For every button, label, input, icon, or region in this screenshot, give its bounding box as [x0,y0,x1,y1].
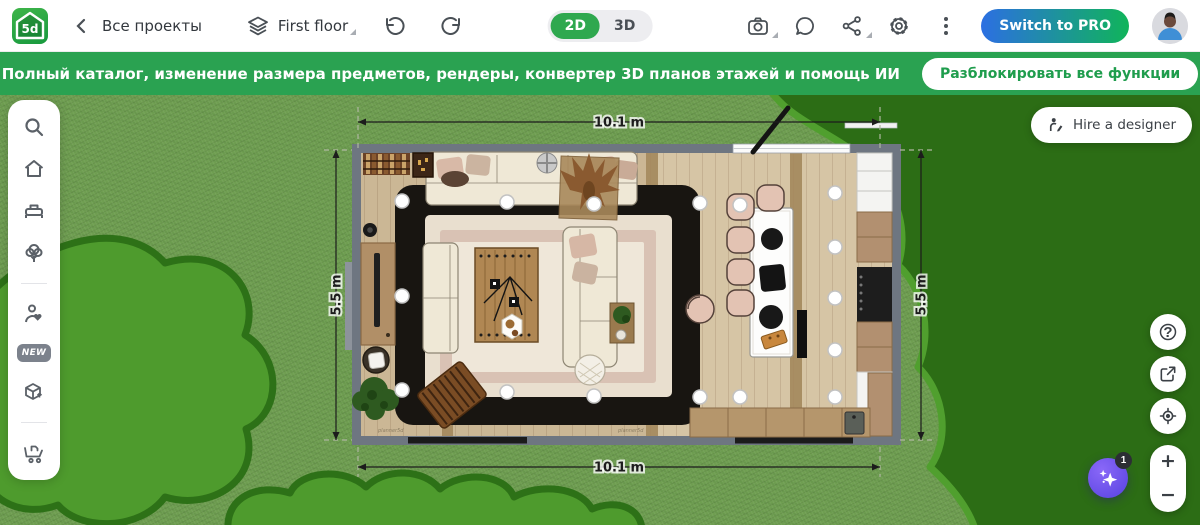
ai-notification-badge: 1 [1115,452,1132,469]
screenshot-camera-icon[interactable] [746,14,770,38]
window-bottom-right[interactable] [735,437,853,444]
zoom-controls: + − [1150,445,1186,512]
floor-plan-scene[interactable]: planner5d planner5d [0,95,1200,525]
toggle-2d[interactable]: 2D [551,13,600,39]
rooms-home-icon[interactable] [22,157,46,181]
sofa-right[interactable] [563,227,617,385]
back-chevron-icon[interactable] [70,14,94,38]
user-avatar[interactable] [1152,8,1188,44]
planner5d-app: 5d Все проекты First floor 2D 3D [0,0,1200,525]
watermark: planner5d [377,428,404,434]
switch-to-pro-button[interactable]: Switch to PRO [981,9,1129,43]
picture-frame[interactable] [413,153,433,177]
tv-console[interactable] [361,243,395,345]
watermark: planner5d [617,428,644,434]
dimension-height-right: 5.5 m [915,274,930,315]
share-icon[interactable] [840,14,864,38]
toggle-3d[interactable]: 3D [600,13,649,39]
coffee-table[interactable] [475,248,538,342]
export-button[interactable] [1150,356,1186,392]
hire-designer-button[interactable]: Hire a designer [1031,107,1192,143]
planner5d-logo[interactable]: 5d [12,8,48,44]
window-bottom-left[interactable] [408,437,527,444]
designer-pencil-icon [1047,116,1065,134]
help-question-mark: ? [1163,324,1172,341]
settings-gear-icon[interactable] [887,14,911,38]
wall-tv[interactable] [797,310,807,358]
bottom-cabinets[interactable] [690,408,870,437]
ledge-left [345,262,352,350]
sidebar-divider [21,283,47,284]
plant-side-table[interactable] [610,303,634,343]
chat-icon[interactable] [793,14,817,38]
garden-tree-icon[interactable] [22,241,46,265]
floor-selector[interactable]: First floor [278,17,348,35]
dimension-width-top: 10.1 m [594,116,644,131]
garden-bush-bottom[interactable] [228,473,642,525]
topbar: 5d Все проекты First floor 2D 3D [0,0,1200,52]
layers-icon[interactable] [246,14,270,38]
ceiling-fan[interactable] [537,153,557,173]
shop-cart-icon[interactable] [22,441,46,465]
redo-icon[interactable] [440,14,464,38]
logo-text: 5d [22,22,39,36]
search-icon[interactable] [22,115,46,139]
all-projects-link[interactable]: Все проекты [102,17,202,35]
view-mode-toggle: 2D 3D [548,10,653,42]
tools-sidebar: NEW [8,100,60,480]
locate-button[interactable] [1150,398,1186,434]
ledge-top-right [845,123,897,128]
kitchen-counter[interactable] [857,153,892,436]
kebab-menu-icon[interactable] [934,14,958,38]
new-badge[interactable]: NEW [17,344,52,362]
zoom-in-button[interactable]: + [1160,452,1176,471]
ai-assistant-button[interactable]: 1 [1088,458,1128,498]
promo-banner: Полный каталог, изменение размера предме… [0,52,1200,95]
dimension-width-bottom: 10.1 m [594,461,644,476]
floor-plan[interactable]: planner5d planner5d [345,108,897,444]
promo-message: Полный каталог, изменение размера предме… [2,65,900,83]
editor-canvas[interactable]: planner5d planner5d [0,95,1200,525]
undo-icon[interactable] [382,14,406,38]
sofa-left[interactable] [423,243,458,353]
furniture-bed-icon[interactable] [22,199,46,223]
dimension-height-left: 5.5 m [330,274,345,315]
designer-person-heart-icon[interactable] [22,302,46,326]
help-button[interactable]: ? [1150,314,1186,350]
sidebar-divider [21,422,47,423]
wall-shelf[interactable] [363,153,410,175]
zoom-out-button[interactable]: − [1160,486,1176,505]
sparkles-icon [1095,465,1121,491]
models-cube-upload-icon[interactable] [22,380,46,404]
unlock-all-features-button[interactable]: Разблокировать все функции [922,58,1198,90]
round-side-table[interactable] [363,347,389,373]
stove[interactable] [857,267,892,322]
hire-designer-label: Hire a designer [1073,117,1176,133]
